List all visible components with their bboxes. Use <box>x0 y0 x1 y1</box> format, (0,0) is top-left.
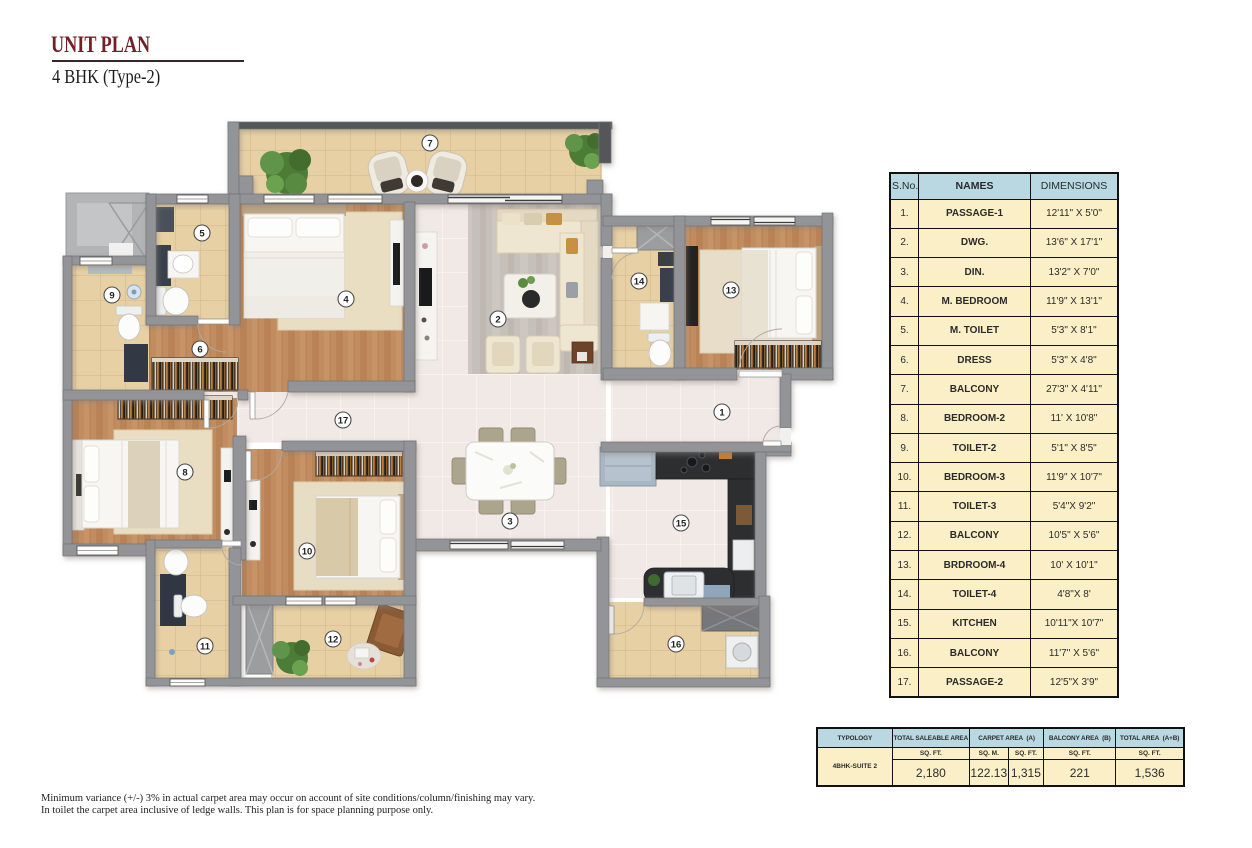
svg-text:2: 2 <box>495 314 500 325</box>
svg-text:6: 6 <box>197 344 202 355</box>
svg-text:8: 8 <box>182 467 187 478</box>
svg-text:10: 10 <box>302 546 313 557</box>
svg-text:15: 15 <box>676 518 687 529</box>
svg-text:17: 17 <box>338 415 349 426</box>
svg-text:9: 9 <box>109 290 114 301</box>
svg-text:7: 7 <box>427 138 432 149</box>
svg-text:16: 16 <box>671 639 682 650</box>
svg-text:5: 5 <box>199 228 205 239</box>
svg-text:3: 3 <box>507 516 512 527</box>
svg-text:13: 13 <box>726 285 737 296</box>
svg-text:1: 1 <box>719 407 725 418</box>
svg-text:12: 12 <box>328 634 339 645</box>
svg-text:14: 14 <box>634 276 645 287</box>
svg-text:4: 4 <box>343 294 349 305</box>
svg-text:11: 11 <box>200 641 211 652</box>
